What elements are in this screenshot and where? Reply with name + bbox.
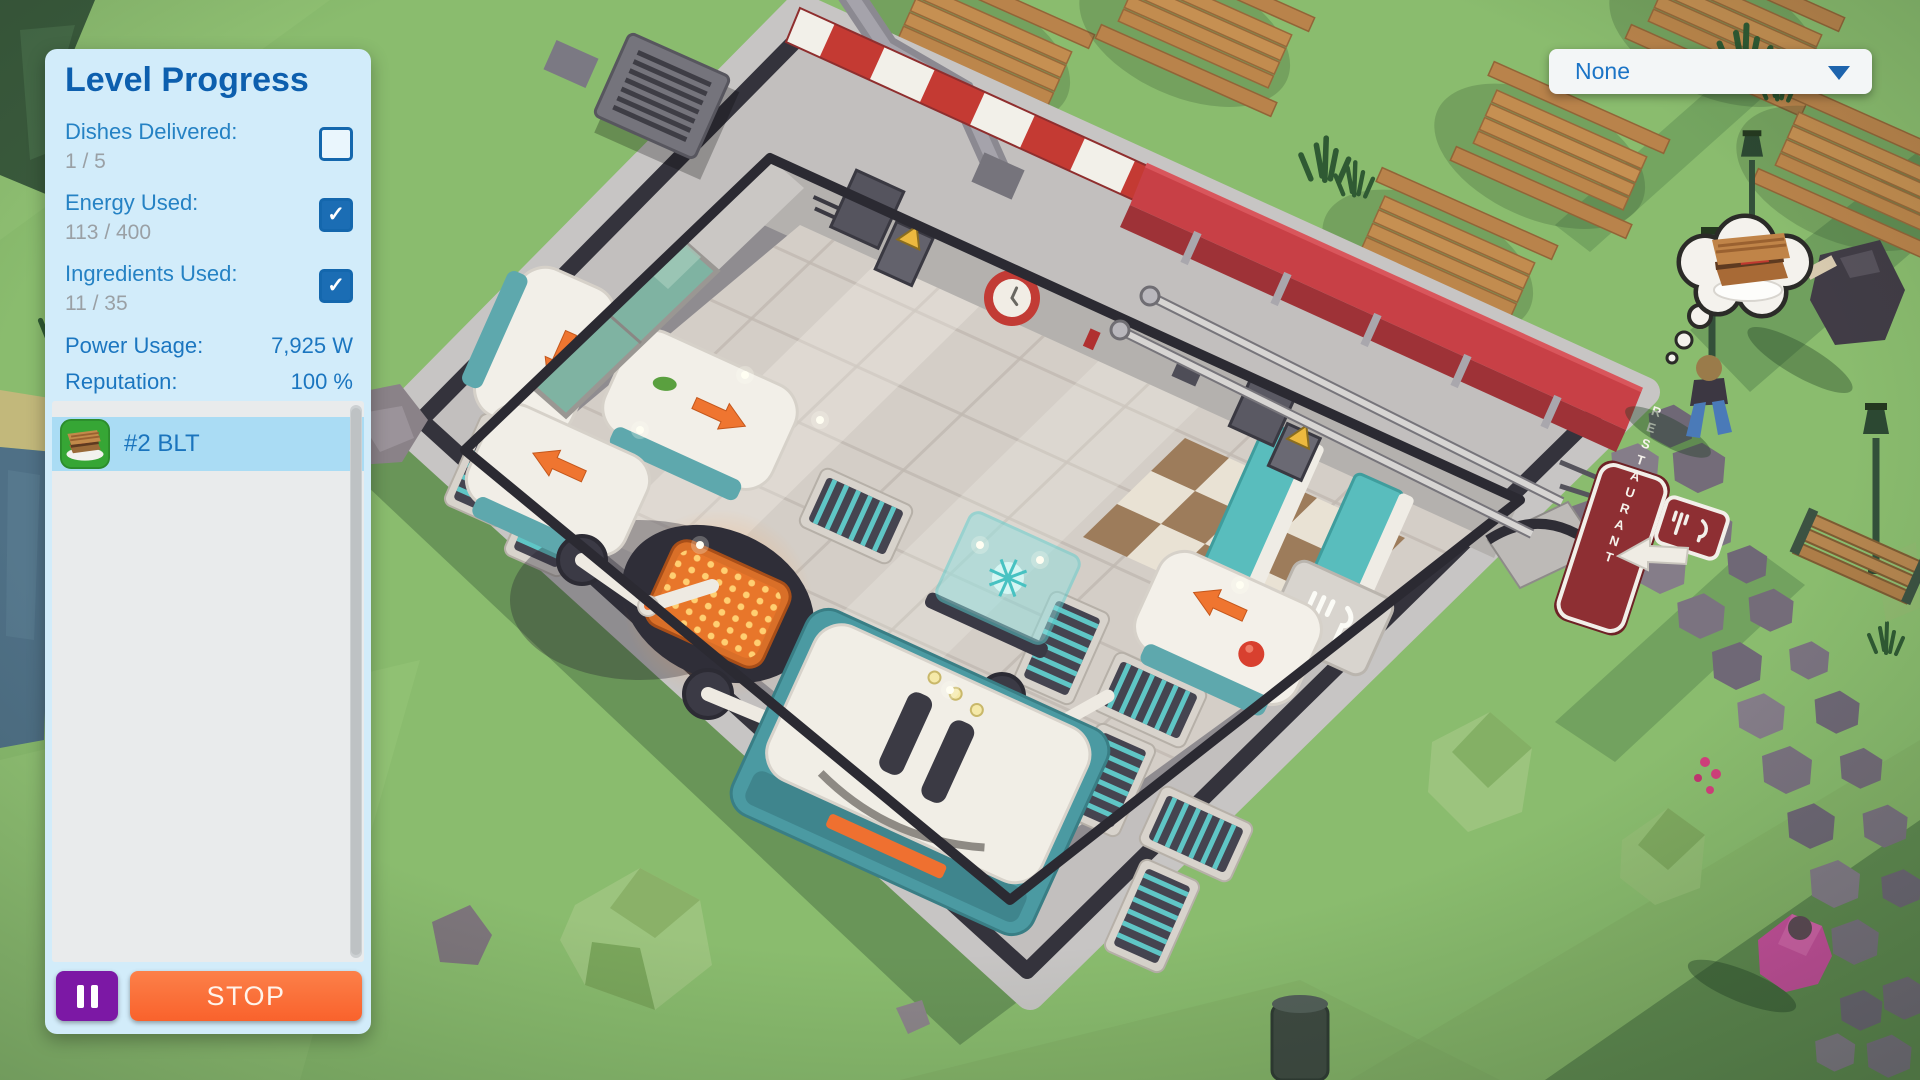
stat-ingredients: Ingredients Used: 11 / 35 ✓ <box>65 261 355 325</box>
blt-sandwich-icon <box>60 419 110 469</box>
dishes-checkbox[interactable] <box>319 127 353 161</box>
stat-value: 113 / 400 <box>65 221 355 245</box>
energy-checkbox[interactable]: ✓ <box>319 198 353 232</box>
order-item-blt[interactable]: #2 BLT <box>52 417 364 471</box>
order-label: #2 BLT <box>124 417 200 471</box>
power-usage-row: Power Usage: 7,925 W <box>65 333 353 359</box>
reputation-row: Reputation: 100 % <box>65 369 353 395</box>
orders-scrollbar[interactable] <box>350 405 362 958</box>
stat-label: Energy Used: <box>65 190 355 216</box>
pause-icon <box>91 985 98 1008</box>
stat-value: 11 / 35 <box>65 292 355 316</box>
pause-icon <box>77 985 84 1008</box>
check-icon: ✓ <box>327 203 345 226</box>
meter-value: 100 % <box>291 369 353 395</box>
meter-label: Power Usage: <box>65 333 203 359</box>
chevron-down-icon <box>1828 66 1850 80</box>
meter-value: 7,925 W <box>271 333 353 359</box>
meter-label: Reputation: <box>65 369 178 395</box>
stat-label: Dishes Delivered: <box>65 119 355 145</box>
stat-energy: Energy Used: 113 / 400 ✓ <box>65 190 355 254</box>
dropdown-value: None <box>1575 49 1630 94</box>
stat-value: 1 / 5 <box>65 150 355 174</box>
pause-button[interactable] <box>56 971 118 1021</box>
scrollbar-thumb[interactable] <box>351 408 361 955</box>
panel-title: Level Progress <box>65 61 309 100</box>
stat-label: Ingredients Used: <box>65 261 355 287</box>
stat-dishes: Dishes Delivered: 1 / 5 <box>65 119 355 183</box>
ingredients-checkbox[interactable]: ✓ <box>319 269 353 303</box>
stop-button[interactable]: STOP <box>130 971 362 1021</box>
level-progress-panel: Level Progress Dishes Delivered: 1 / 5 E… <box>45 49 371 1034</box>
orders-list: #2 BLT <box>52 401 364 962</box>
camera-dropdown[interactable]: None <box>1549 49 1872 94</box>
check-icon: ✓ <box>327 274 345 297</box>
